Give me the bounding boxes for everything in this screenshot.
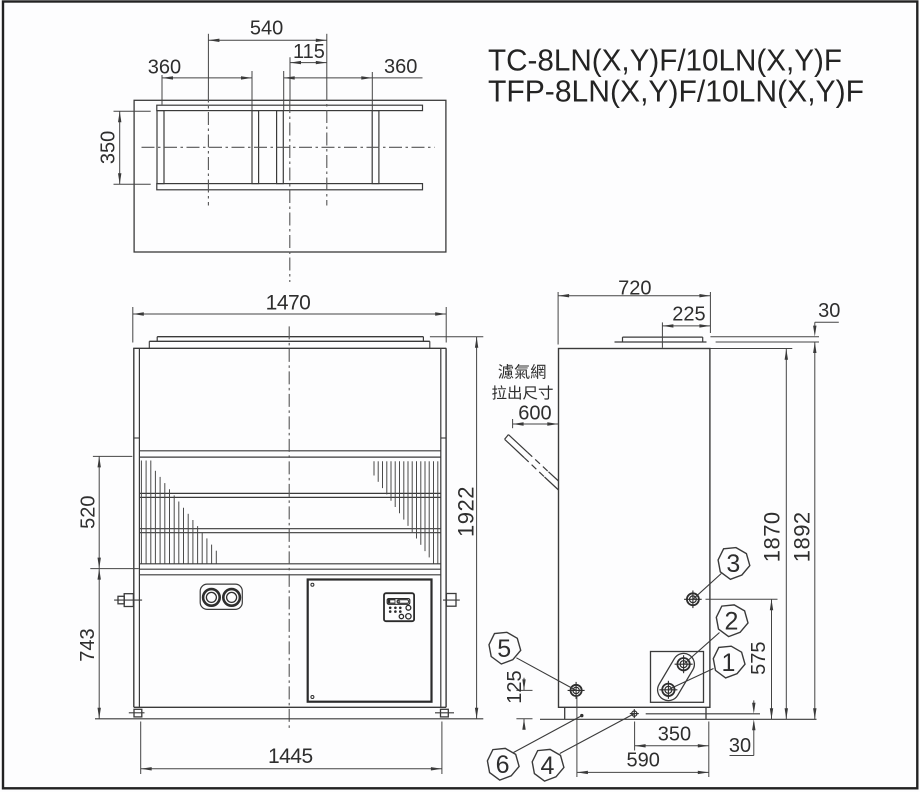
- svg-text:225: 225: [672, 304, 705, 326]
- svg-text:1: 1: [722, 649, 736, 677]
- svg-text:1892: 1892: [789, 511, 814, 562]
- svg-text:2: 2: [725, 608, 739, 636]
- svg-text:600: 600: [518, 402, 551, 424]
- svg-text:5: 5: [497, 635, 511, 663]
- svg-text:540: 540: [250, 17, 283, 39]
- svg-text:520: 520: [77, 496, 99, 529]
- svg-text:575: 575: [748, 642, 770, 675]
- svg-text:1922: 1922: [453, 486, 478, 537]
- svg-text:350: 350: [658, 723, 691, 745]
- svg-text:1470: 1470: [266, 292, 311, 315]
- svg-text:4: 4: [540, 752, 554, 780]
- svg-text:360: 360: [384, 56, 417, 78]
- svg-text:1445: 1445: [268, 745, 313, 768]
- svg-text:TC-8LN(X,Y)F/10LN(X,Y)F: TC-8LN(X,Y)F/10LN(X,Y)F: [488, 42, 842, 77]
- svg-text:30: 30: [818, 300, 840, 322]
- svg-text:30: 30: [729, 735, 751, 757]
- svg-text:6: 6: [496, 751, 510, 779]
- svg-text:125: 125: [504, 670, 526, 703]
- svg-text:350: 350: [98, 131, 120, 164]
- svg-text:3: 3: [726, 550, 740, 578]
- svg-text:115: 115: [293, 41, 325, 63]
- svg-text:743: 743: [77, 628, 99, 661]
- svg-text:720: 720: [618, 278, 651, 300]
- svg-text:360: 360: [148, 57, 181, 79]
- svg-text:TFP-8LN(X,Y)F/10LN(X,Y)F: TFP-8LN(X,Y)F/10LN(X,Y)F: [488, 74, 864, 109]
- svg-text:590: 590: [627, 750, 660, 772]
- svg-text:1870: 1870: [759, 511, 784, 562]
